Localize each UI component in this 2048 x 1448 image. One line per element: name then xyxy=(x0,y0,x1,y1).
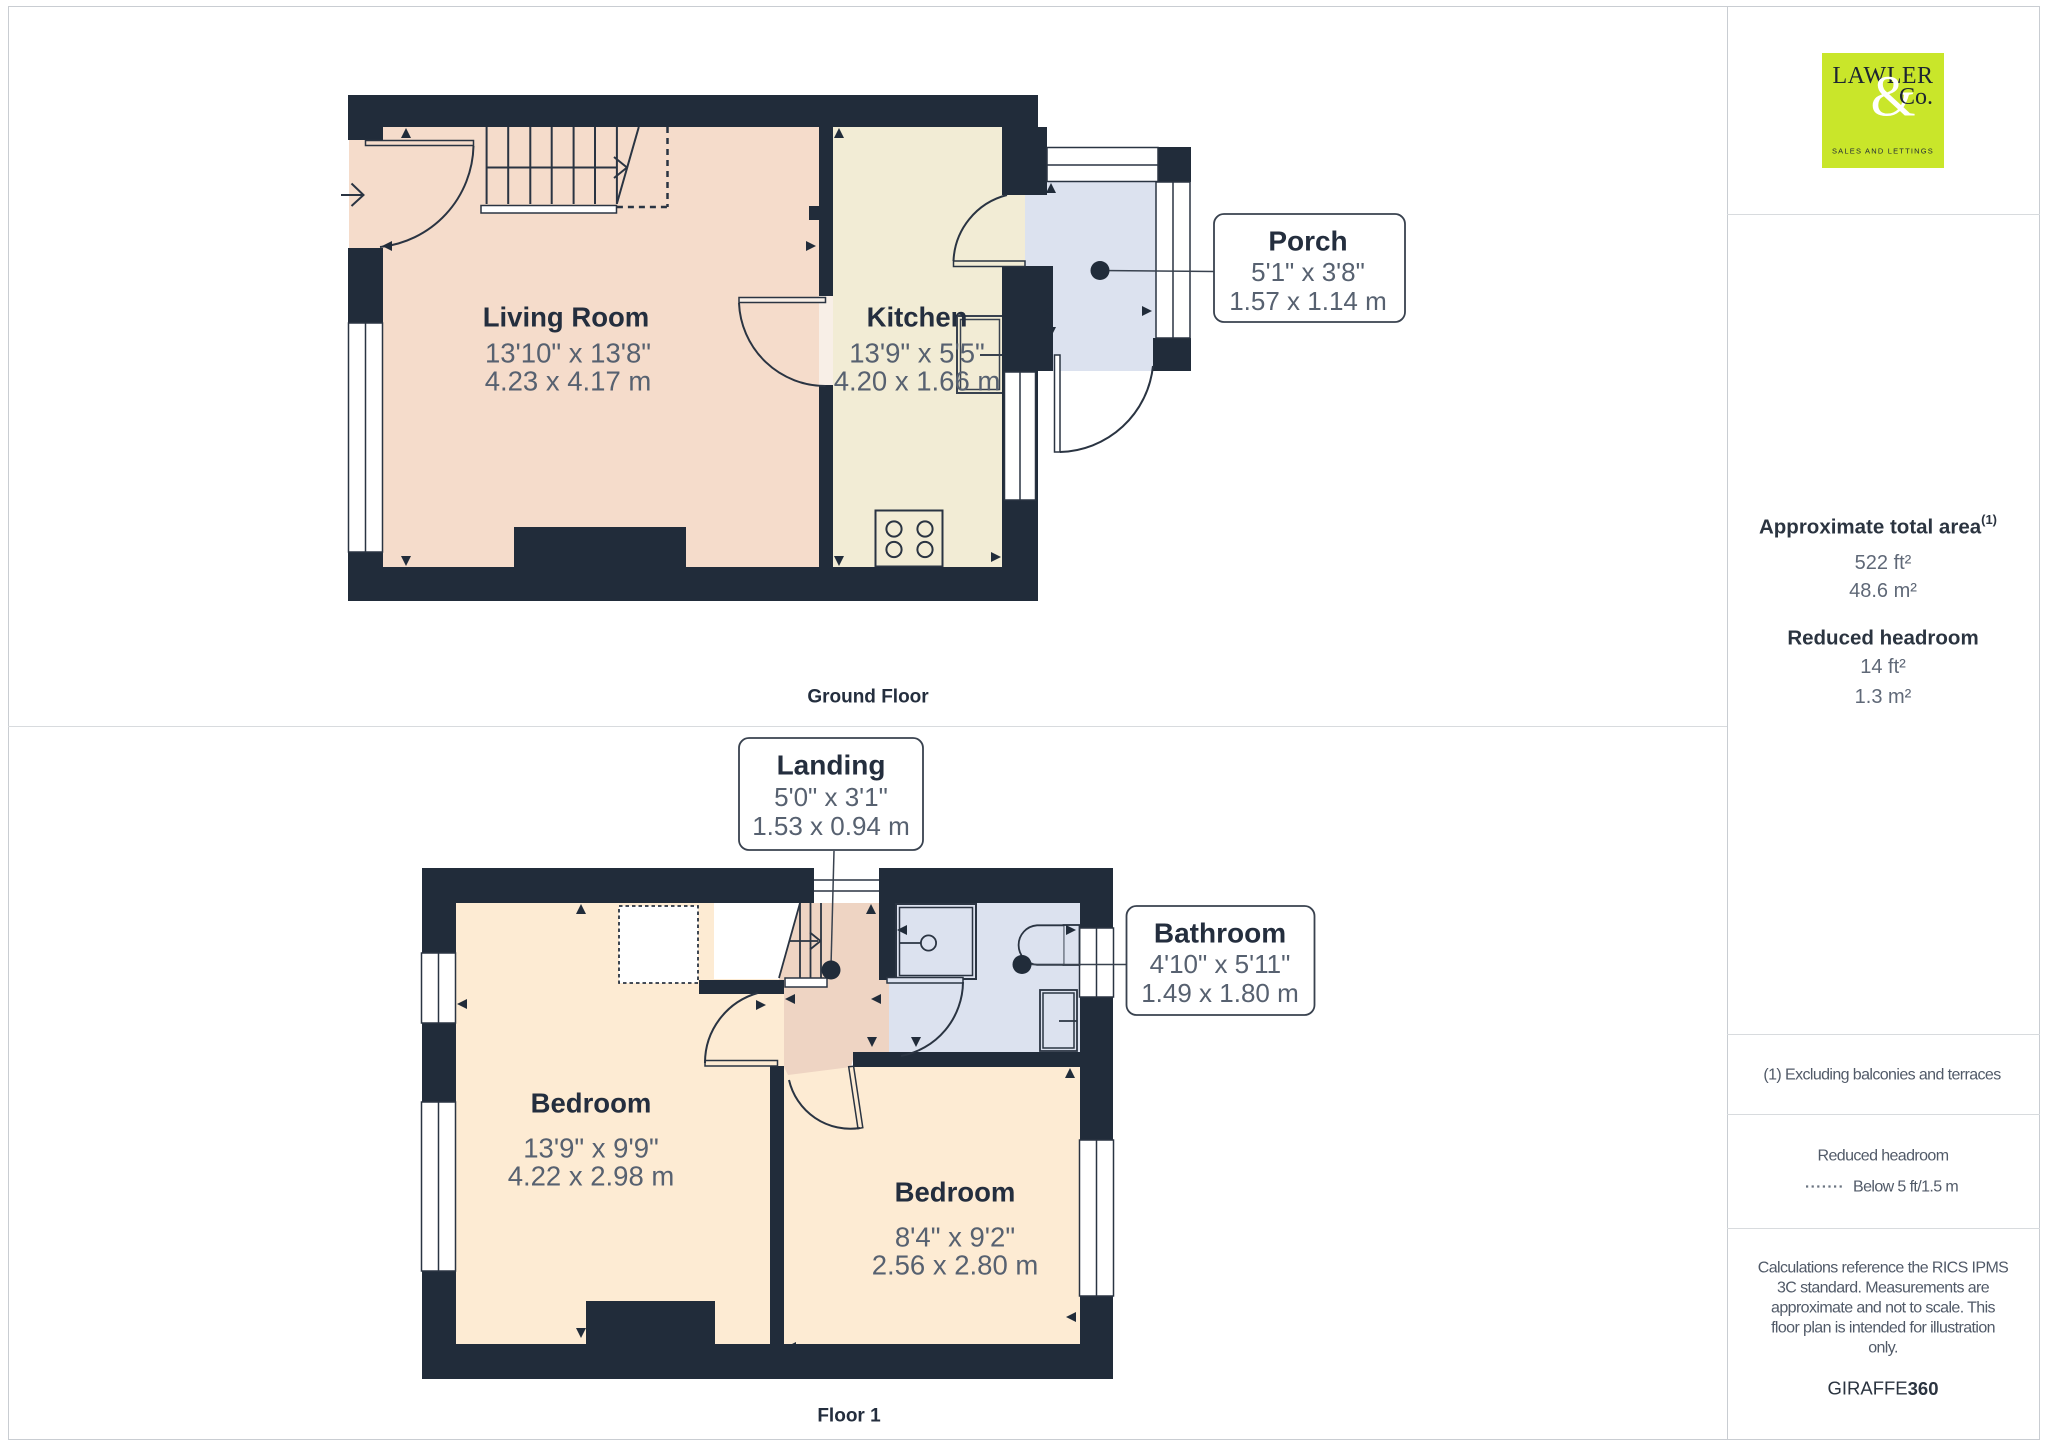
svg-text:Calculations reference the RIC: Calculations reference the RICS IPMS xyxy=(1758,1260,2009,1277)
svg-text:Ground Floor: Ground Floor xyxy=(807,687,929,708)
svg-text:SALES AND LETTINGS: SALES AND LETTINGS xyxy=(1832,147,1934,156)
svg-text:Porch: Porch xyxy=(1268,226,1347,257)
svg-text:Approximate total area(1): Approximate total area(1) xyxy=(1759,512,1997,539)
svg-text:Below 5 ft/1.5 m: Below 5 ft/1.5 m xyxy=(1853,1179,1958,1196)
svg-text:only.: only. xyxy=(1868,1340,1898,1357)
svg-text:4.22 x 2.98 m: 4.22 x 2.98 m xyxy=(508,1161,675,1192)
svg-text:13'9" x 9'9": 13'9" x 9'9" xyxy=(523,1133,659,1164)
svg-text:Kitchen: Kitchen xyxy=(867,302,968,333)
svg-text:1.3 m²: 1.3 m² xyxy=(1855,686,1912,708)
svg-text:Landing: Landing xyxy=(777,750,886,781)
svg-text:522 ft²: 522 ft² xyxy=(1855,552,1912,574)
svg-text:13'9" x 5'5": 13'9" x 5'5" xyxy=(849,338,985,369)
svg-text:GIRAFFE360: GIRAFFE360 xyxy=(1827,1378,1938,1399)
svg-text:5'1" x 3'8": 5'1" x 3'8" xyxy=(1251,257,1365,287)
svg-text:4'10" x 5'11": 4'10" x 5'11" xyxy=(1150,949,1291,979)
svg-text:approximate and not to scale.: approximate and not to scale. This xyxy=(1771,1300,1995,1317)
svg-text:Reduced headroom: Reduced headroom xyxy=(1818,1148,1949,1165)
svg-text:Bedroom: Bedroom xyxy=(895,1177,1016,1208)
svg-text:Living Room: Living Room xyxy=(483,302,650,333)
svg-text:Bathroom: Bathroom xyxy=(1154,918,1286,949)
svg-text:Co.: Co. xyxy=(1899,84,1933,110)
svg-text:1.49 x 1.80 m: 1.49 x 1.80 m xyxy=(1141,978,1299,1008)
svg-text:Floor 1: Floor 1 xyxy=(817,1406,881,1427)
svg-text:Bedroom: Bedroom xyxy=(531,1088,652,1119)
svg-text:8'4" x 9'2": 8'4" x 9'2" xyxy=(895,1222,1015,1253)
svg-text:4.20 x 1.66 m: 4.20 x 1.66 m xyxy=(834,366,1001,397)
svg-text:3C standard. Measurements are: 3C standard. Measurements are xyxy=(1777,1280,1990,1297)
svg-text:(1) Excluding balconies and te: (1) Excluding balconies and terraces xyxy=(1763,1067,2001,1084)
svg-text:4.23 x 4.17 m: 4.23 x 4.17 m xyxy=(485,366,652,397)
svg-text:floor plan is intended for ill: floor plan is intended for illustration xyxy=(1771,1320,1995,1337)
svg-text:5'0" x 3'1": 5'0" x 3'1" xyxy=(774,782,888,812)
svg-text:14 ft²: 14 ft² xyxy=(1860,656,1906,678)
svg-text:Reduced headroom: Reduced headroom xyxy=(1787,627,1978,650)
svg-text:48.6 m²: 48.6 m² xyxy=(1849,580,1917,602)
svg-text:2.56 x 2.80 m: 2.56 x 2.80 m xyxy=(872,1250,1039,1281)
svg-text:13'10" x 13'8": 13'10" x 13'8" xyxy=(485,338,651,369)
svg-text:1.53 x 0.94 m: 1.53 x 0.94 m xyxy=(752,811,910,841)
svg-text:1.57 x 1.14 m: 1.57 x 1.14 m xyxy=(1229,286,1387,316)
